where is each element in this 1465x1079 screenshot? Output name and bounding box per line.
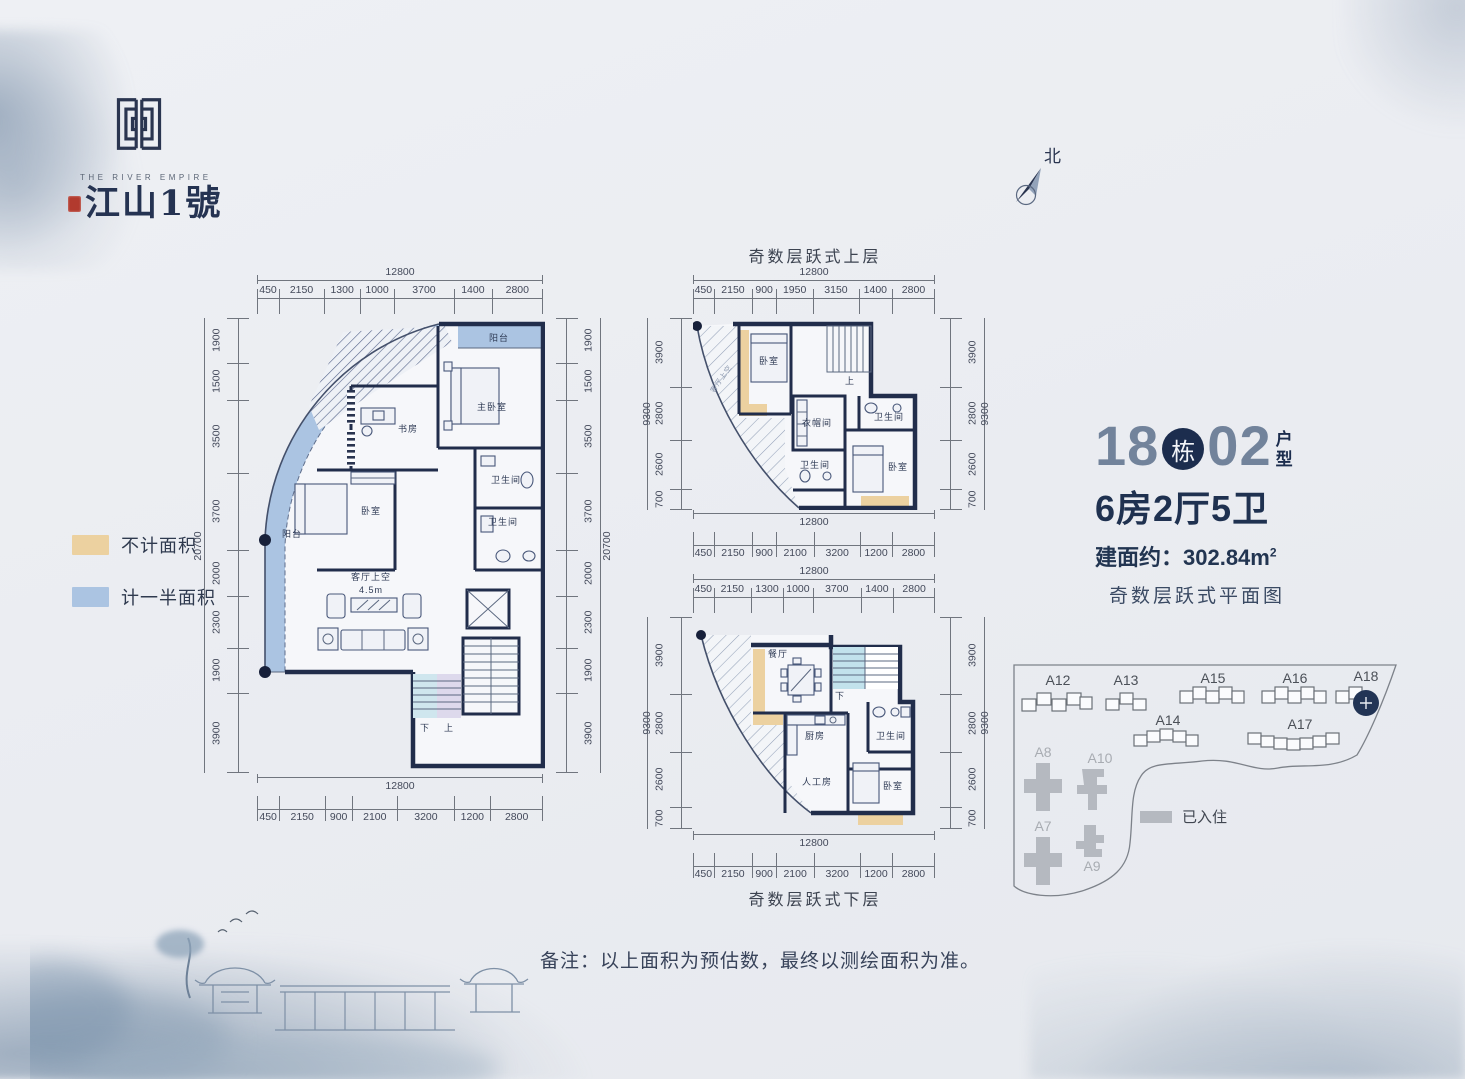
building-a8	[1024, 763, 1062, 811]
main-floor-plan: 阳台 主卧室 书房 卧室 卫生间 卫生间 客厅上空 4.5m 阳台 下 上	[255, 318, 545, 773]
main-plan-right-dimensions: 1900150035003700200023001900390020700	[553, 318, 613, 773]
building-char-badge: 栋	[1162, 428, 1204, 470]
stair-up-label: 上	[845, 376, 855, 386]
ink-wash-mountains-bottom-right	[1030, 920, 1465, 1079]
site-label-a12: A12	[1046, 672, 1071, 688]
room-label-cloakroom: 衣帽间	[802, 417, 832, 428]
upper-plan-title: 奇数层跃式上层	[665, 243, 965, 267]
bedroom-bed	[295, 484, 347, 534]
unit-number: 02	[1207, 418, 1271, 474]
legend-swatch-half-counted	[72, 587, 109, 607]
building-cluster-a15	[1180, 687, 1244, 703]
stair-up-label: 上	[444, 723, 454, 733]
room-label-bedroom: 卧室	[883, 780, 903, 791]
lower-bed	[853, 763, 879, 803]
unit-number-row: 18 栋 02 户 型	[1095, 420, 1435, 472]
upper-plan-right-dimensions: 3900280026007009300	[937, 318, 981, 510]
room-label-bedroom: 卧室	[361, 505, 381, 516]
room-label-bath-2: 卫生间	[488, 516, 518, 527]
room-label-bedroom-2: 卧室	[888, 461, 908, 472]
site-label-a9: A9	[1083, 858, 1100, 874]
not-counted-strip	[861, 496, 909, 506]
north-arrow-icon: 北	[1008, 138, 1078, 213]
occupied-legend-label: 已入住	[1182, 809, 1227, 826]
room-label-maid-room: 人工房	[802, 776, 832, 787]
birds-icon	[218, 911, 258, 932]
room-count-summary: 6房2厅5卫	[1095, 480, 1435, 532]
lower-stairs	[833, 647, 898, 689]
upper-plan-left-dimensions: 9300390028002600700	[647, 318, 691, 510]
built-area: 建面约：302.84m2	[1095, 540, 1435, 572]
site-label-a8: A8	[1034, 744, 1051, 760]
building-a7	[1024, 837, 1062, 885]
site-label-a14: A14	[1156, 712, 1181, 728]
unit-info: 18 栋 02 户 型 6房2厅5卫 建面约：302.84m2 奇数层跃式平面图	[1095, 420, 1435, 608]
upper-level-floor-plan: 客厅上空 卧室 上 衣帽间 卫生间 卫生间 卧室	[693, 318, 935, 510]
arc-node-dot	[259, 534, 271, 546]
wall-with-roof	[275, 986, 455, 1030]
occupied-legend-swatch	[1140, 811, 1172, 823]
site-label-a16: A16	[1283, 670, 1308, 686]
unit-type-char-1: 户	[1276, 430, 1293, 450]
ink-landscape-illustration	[30, 900, 610, 1079]
stair-down-label: 下	[835, 691, 845, 701]
room-label-balcony-top: 阳台	[489, 332, 509, 343]
unit-type-chars: 户 型	[1276, 430, 1293, 469]
brand-english-name: THE RIVER EMPIRE	[80, 173, 230, 182]
main-plan-left-dimensions: 2070019001500350037002000230019003900	[192, 318, 252, 773]
north-label: 北	[1044, 147, 1061, 166]
building-a10	[1077, 769, 1107, 810]
built-area-value: 建面约：302.84m	[1095, 545, 1270, 570]
room-label-living-height: 4.5m	[359, 585, 383, 595]
room-label-bath-2: 卫生间	[800, 459, 830, 470]
lower-plan-title: 奇数层跃式下层	[665, 886, 965, 910]
room-label-bath-1: 卫生间	[491, 474, 521, 485]
main-plan-bottom-dimensions: 4502150900210032001200280012800	[257, 776, 543, 826]
room-label-dining: 餐厅	[768, 648, 788, 659]
main-plan-top-dimensions: 12800450215013001000370014002800	[257, 266, 543, 316]
pavilion-right	[460, 969, 528, 1013]
brand-name-row: 江山1號	[68, 186, 222, 221]
not-counted-strip	[753, 649, 765, 721]
legend-swatch-not-counted	[72, 535, 109, 555]
floorplan-poster: THE RIVER EMPIRE 江山1號 北 不计面积 计一半面积 12800…	[0, 0, 1465, 1079]
building-a9	[1076, 825, 1104, 857]
brand-emblem-icon	[111, 96, 167, 152]
lower-plan-top-dimensions: 12800450215013001000370014002800	[693, 565, 935, 615]
plan-subtitle: 奇数层跃式平面图	[1109, 581, 1435, 608]
stair-down-label: 下	[420, 723, 430, 733]
building-cluster-a13	[1106, 693, 1146, 710]
not-counted-strip	[753, 713, 783, 725]
upper-plan-bottom-dimensions: 4502150900210032001200280012800	[693, 512, 935, 562]
room-label-bath-1: 卫生间	[874, 411, 904, 422]
building-cluster-a18	[1336, 687, 1379, 716]
building-cluster-a16	[1262, 687, 1326, 703]
building-cluster-a14	[1134, 729, 1198, 746]
unit-type-char-2: 型	[1276, 450, 1293, 470]
room-label-living-void: 客厅上空	[351, 571, 391, 582]
building-number: 18	[1095, 418, 1159, 474]
arc-node-dot	[259, 666, 271, 678]
room-label-balcony-left: 阳台	[282, 528, 302, 539]
site-map: A12 A13 A15 A16 A18 A14 A17 A8 A10 A7 A9…	[1000, 645, 1420, 910]
site-label-a10: A10	[1088, 750, 1113, 766]
building-cluster-a12	[1022, 693, 1092, 711]
pavilion-left	[195, 968, 275, 1013]
duplex-stairs	[413, 674, 461, 718]
building-cluster-a17	[1248, 733, 1339, 750]
area-superscript: 2	[1270, 546, 1277, 560]
room-label-bath: 卫生间	[876, 730, 906, 741]
site-label-a17: A17	[1288, 716, 1313, 732]
room-label-kitchen: 厨房	[805, 730, 825, 741]
lower-level-floor-plan: 餐厅 下 厨房 人工房 卫生间 卧室	[693, 617, 935, 829]
site-label-a15: A15	[1201, 670, 1226, 686]
room-label-master-bedroom: 主卧室	[477, 401, 507, 412]
master-bed	[444, 362, 499, 430]
not-counted-strip	[858, 814, 903, 825]
site-label-a18: A18	[1354, 668, 1379, 684]
legend-label-not-counted: 不计面积	[121, 532, 197, 558]
ink-wash-top-right	[1345, 0, 1465, 160]
brand-seal-icon	[68, 196, 81, 212]
lower-plan-left-dimensions: 9300390028002600700	[647, 617, 691, 829]
tree-illustration	[156, 930, 204, 998]
site-label-a7: A7	[1034, 818, 1051, 834]
arc-node-dot	[696, 630, 706, 640]
room-label-study: 书房	[398, 423, 418, 434]
brand-chinese-name: 江山1號	[85, 186, 222, 221]
upper-plan-top-dimensions: 1280045021509001950315014002800	[693, 266, 935, 316]
room-label-bedroom-1: 卧室	[759, 355, 779, 366]
site-label-a13: A13	[1114, 672, 1139, 688]
lower-plan-bottom-dimensions: 4502150900210032001200280012800	[693, 833, 935, 883]
lower-plan-right-dimensions: 3900280026007009300	[937, 617, 981, 829]
